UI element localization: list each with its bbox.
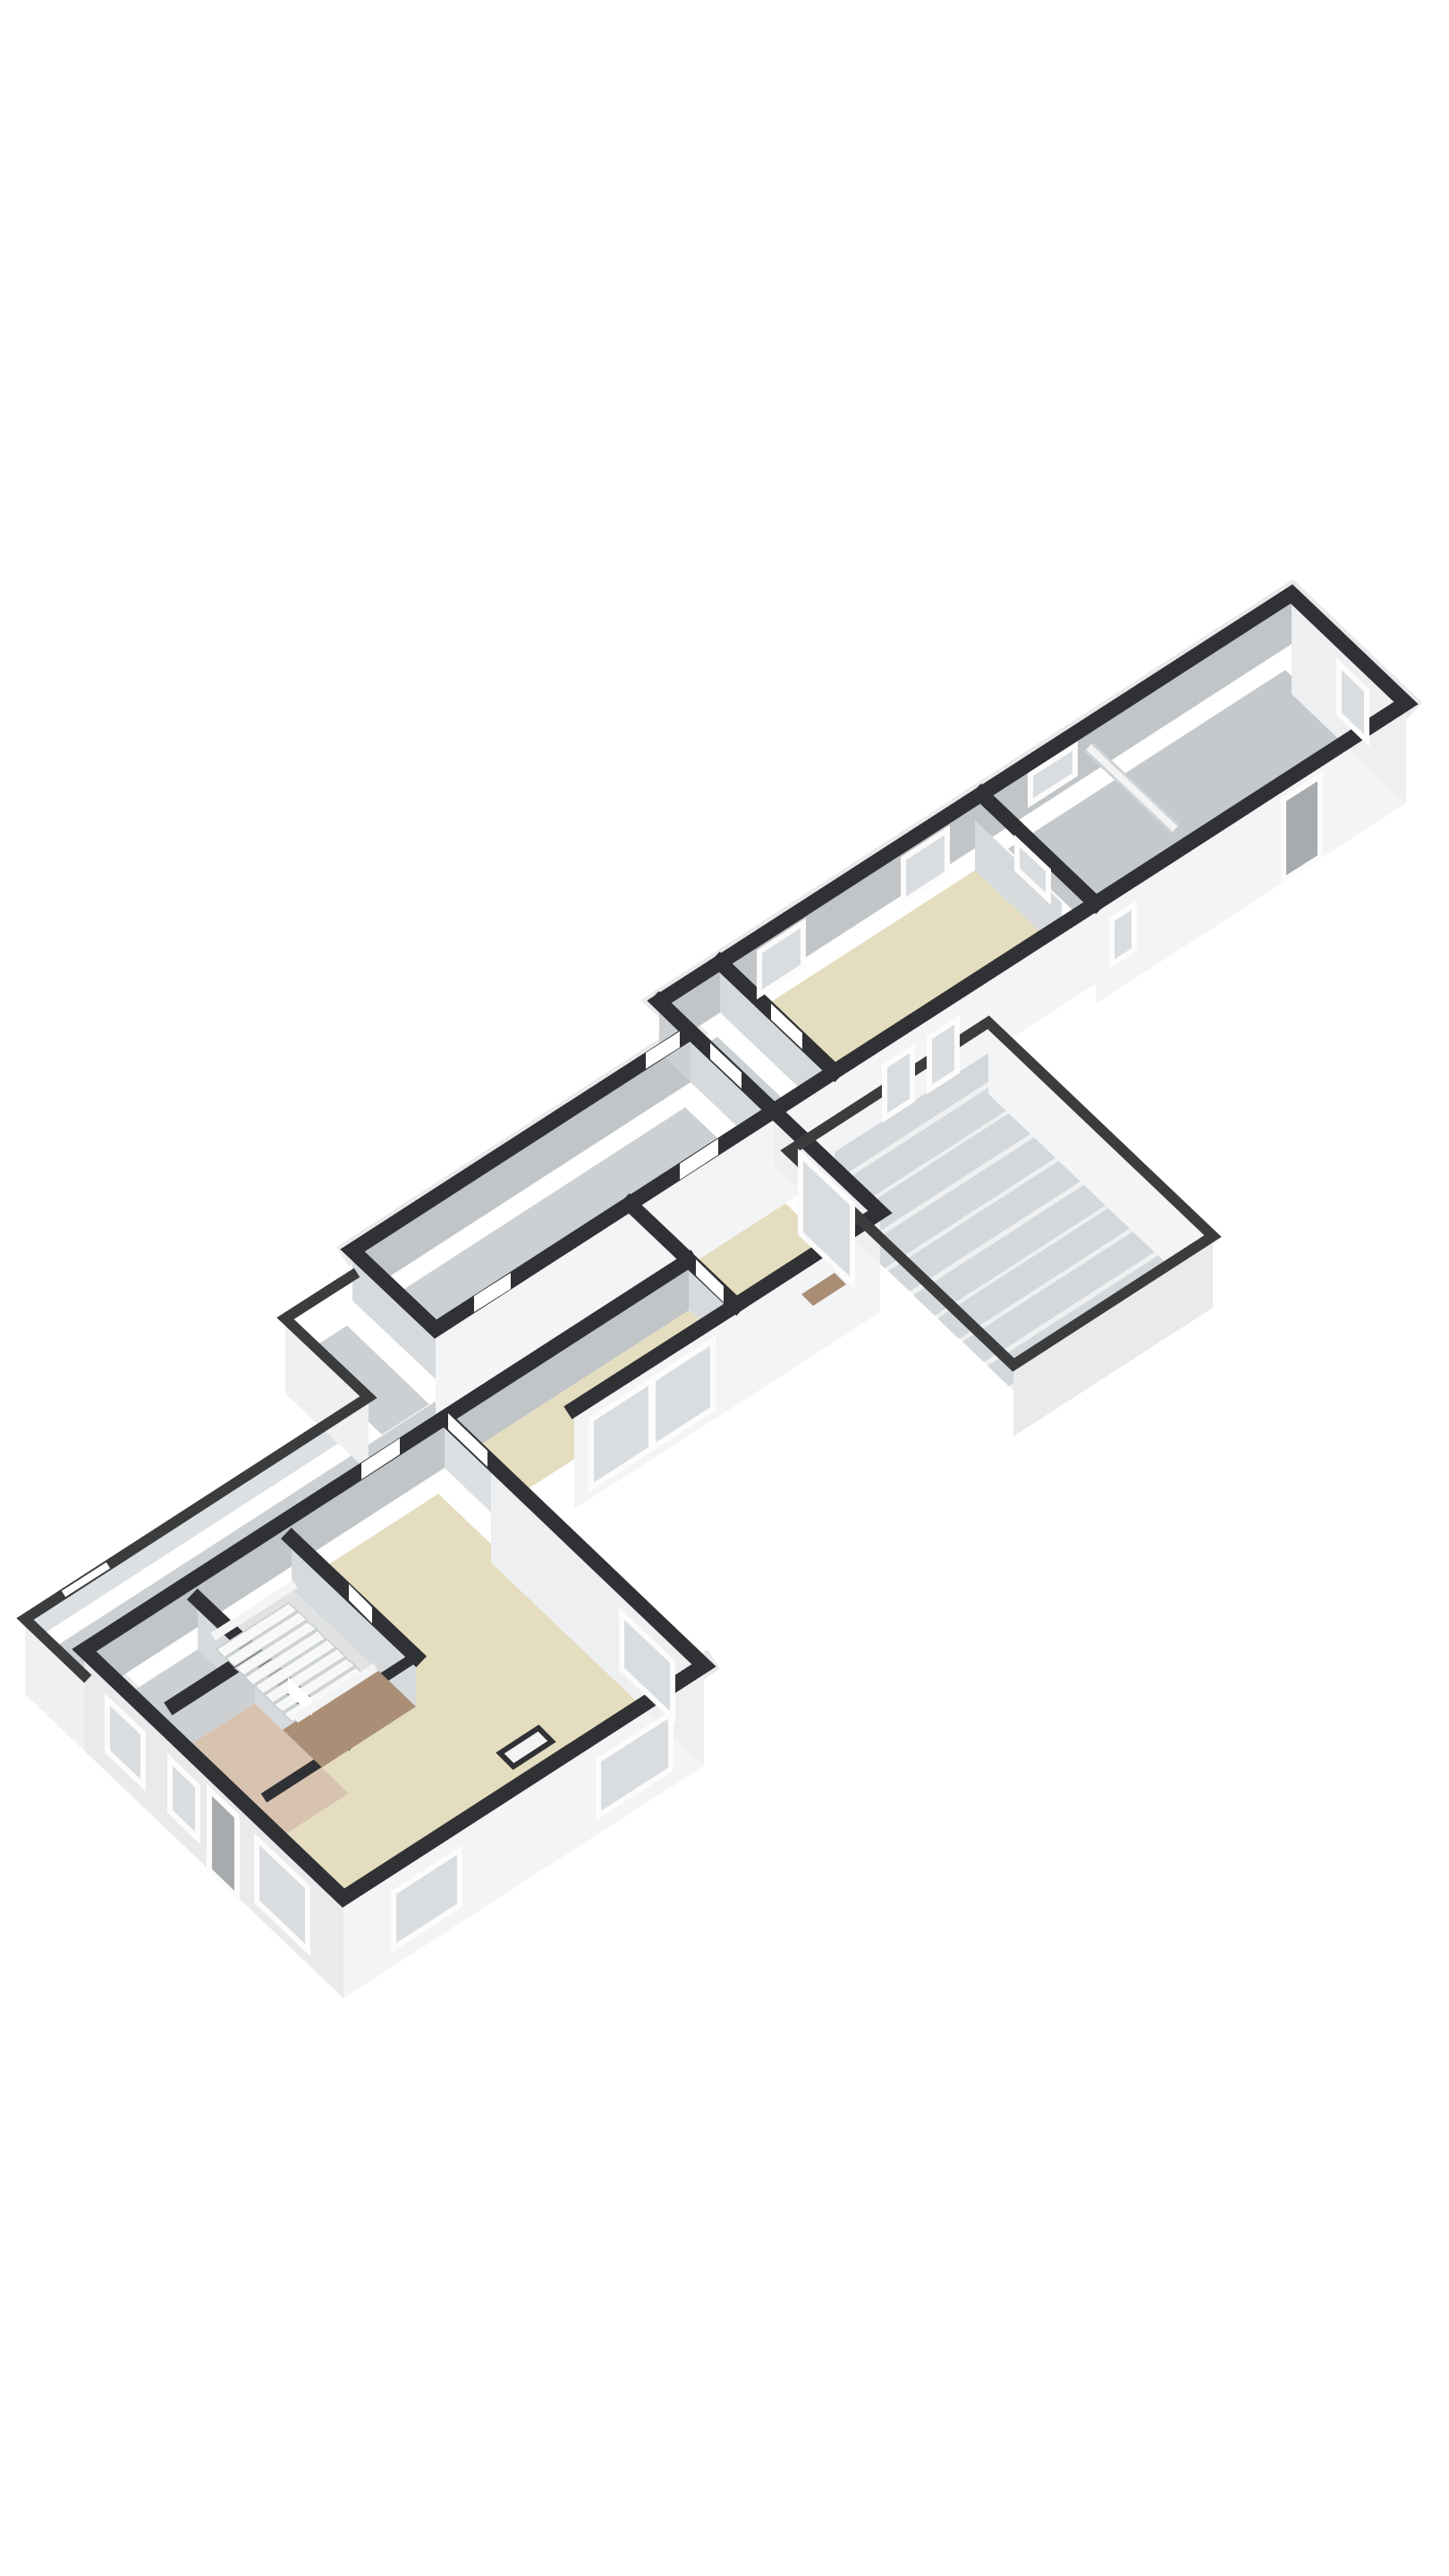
building — [25, 594, 1406, 1998]
floorplan-3d-stage — [0, 0, 1449, 2576]
floorplan-3d — [0, 0, 1449, 2576]
